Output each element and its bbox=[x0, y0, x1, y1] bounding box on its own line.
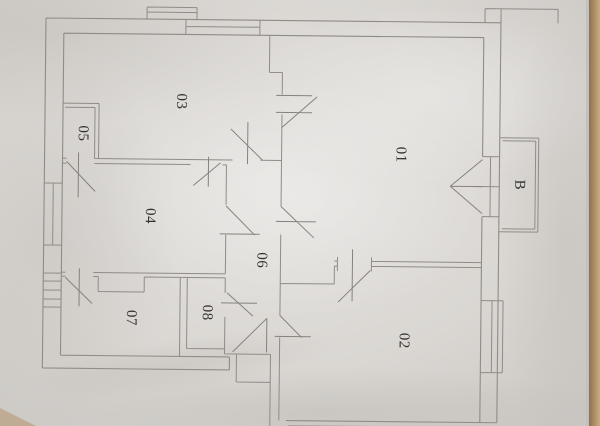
room-label-05: 05 bbox=[75, 125, 91, 141]
room-label-02: 02 bbox=[396, 333, 412, 349]
floor-plan-photo: 0102030405060708B bbox=[0, 0, 600, 426]
room-label-03: 03 bbox=[173, 93, 189, 109]
room-label-06: 06 bbox=[253, 252, 269, 268]
room-label-07: 07 bbox=[123, 310, 139, 326]
room-label-08: 08 bbox=[199, 305, 215, 321]
room-label-04: 04 bbox=[142, 208, 158, 224]
room-label-01: 01 bbox=[393, 147, 409, 163]
floor-plan-svg: 0102030405060708B bbox=[0, 0, 600, 426]
paper-crumple-shading bbox=[0, 0, 600, 426]
room-label-B: B bbox=[511, 180, 527, 191]
